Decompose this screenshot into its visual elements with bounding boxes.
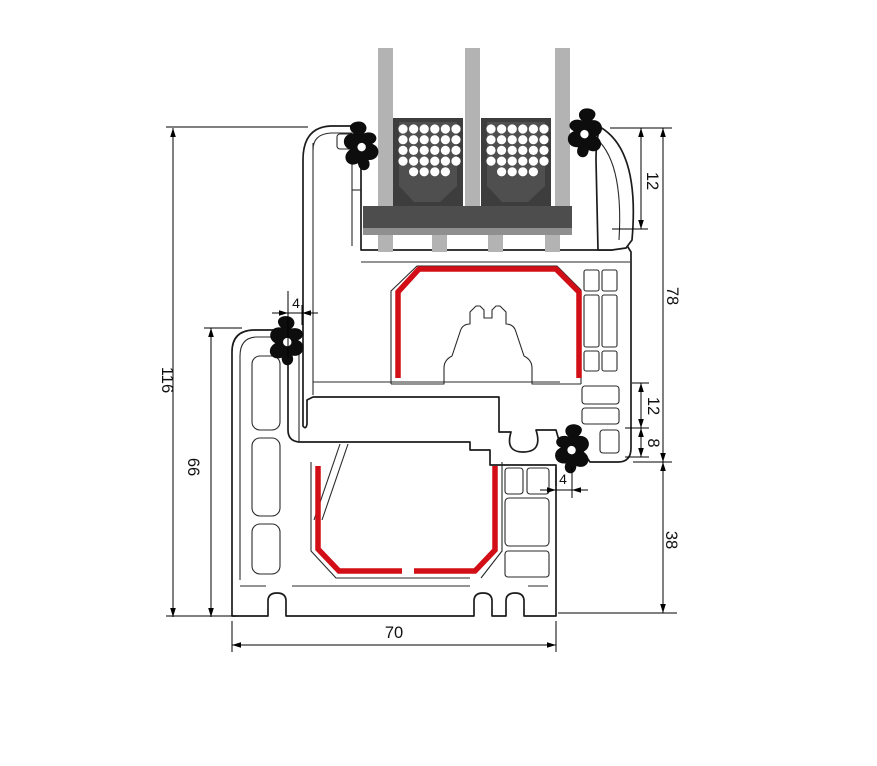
dim-label-78: 78 xyxy=(663,287,681,305)
window-cross-section-diagram: 116 66 70 12 78 xyxy=(0,0,877,766)
dim-70: 70 xyxy=(232,624,556,648)
bridge-foot xyxy=(432,235,447,252)
glass-pane-1 xyxy=(378,48,393,210)
dim-38: 38 xyxy=(660,462,680,613)
dim-label-66: 66 xyxy=(184,458,202,476)
glazing-unit xyxy=(363,48,572,252)
glass-pane-2 xyxy=(465,48,480,210)
dim-12-top: 12 xyxy=(638,128,661,229)
glazing-bead xyxy=(596,127,633,250)
bridge-foot xyxy=(488,235,503,252)
diagram-canvas: 116 66 70 12 78 xyxy=(0,0,877,766)
dim-label-12-top: 12 xyxy=(643,172,661,190)
glazing-bridge-strip xyxy=(363,228,572,235)
dim-78: 78 xyxy=(660,128,681,462)
bridge-foot xyxy=(545,235,560,252)
dim-66: 66 xyxy=(184,328,214,617)
bridge-foot xyxy=(378,235,393,252)
dim-label-70: 70 xyxy=(385,624,403,642)
glazing-bridge xyxy=(363,206,572,228)
dim-12-mid: 12 xyxy=(638,383,662,428)
dim-label-116: 116 xyxy=(158,367,176,393)
dim-8: 8 xyxy=(638,428,662,457)
dim-label-8: 8 xyxy=(644,438,662,447)
glass-pane-3 xyxy=(555,48,570,210)
dim-label-12-mid: 12 xyxy=(644,397,662,415)
dim-label-4-left: 4 xyxy=(292,295,300,311)
dim-116: 116 xyxy=(158,128,176,617)
dim-label-38: 38 xyxy=(662,531,680,549)
dim-label-4-right: 4 xyxy=(559,471,567,487)
